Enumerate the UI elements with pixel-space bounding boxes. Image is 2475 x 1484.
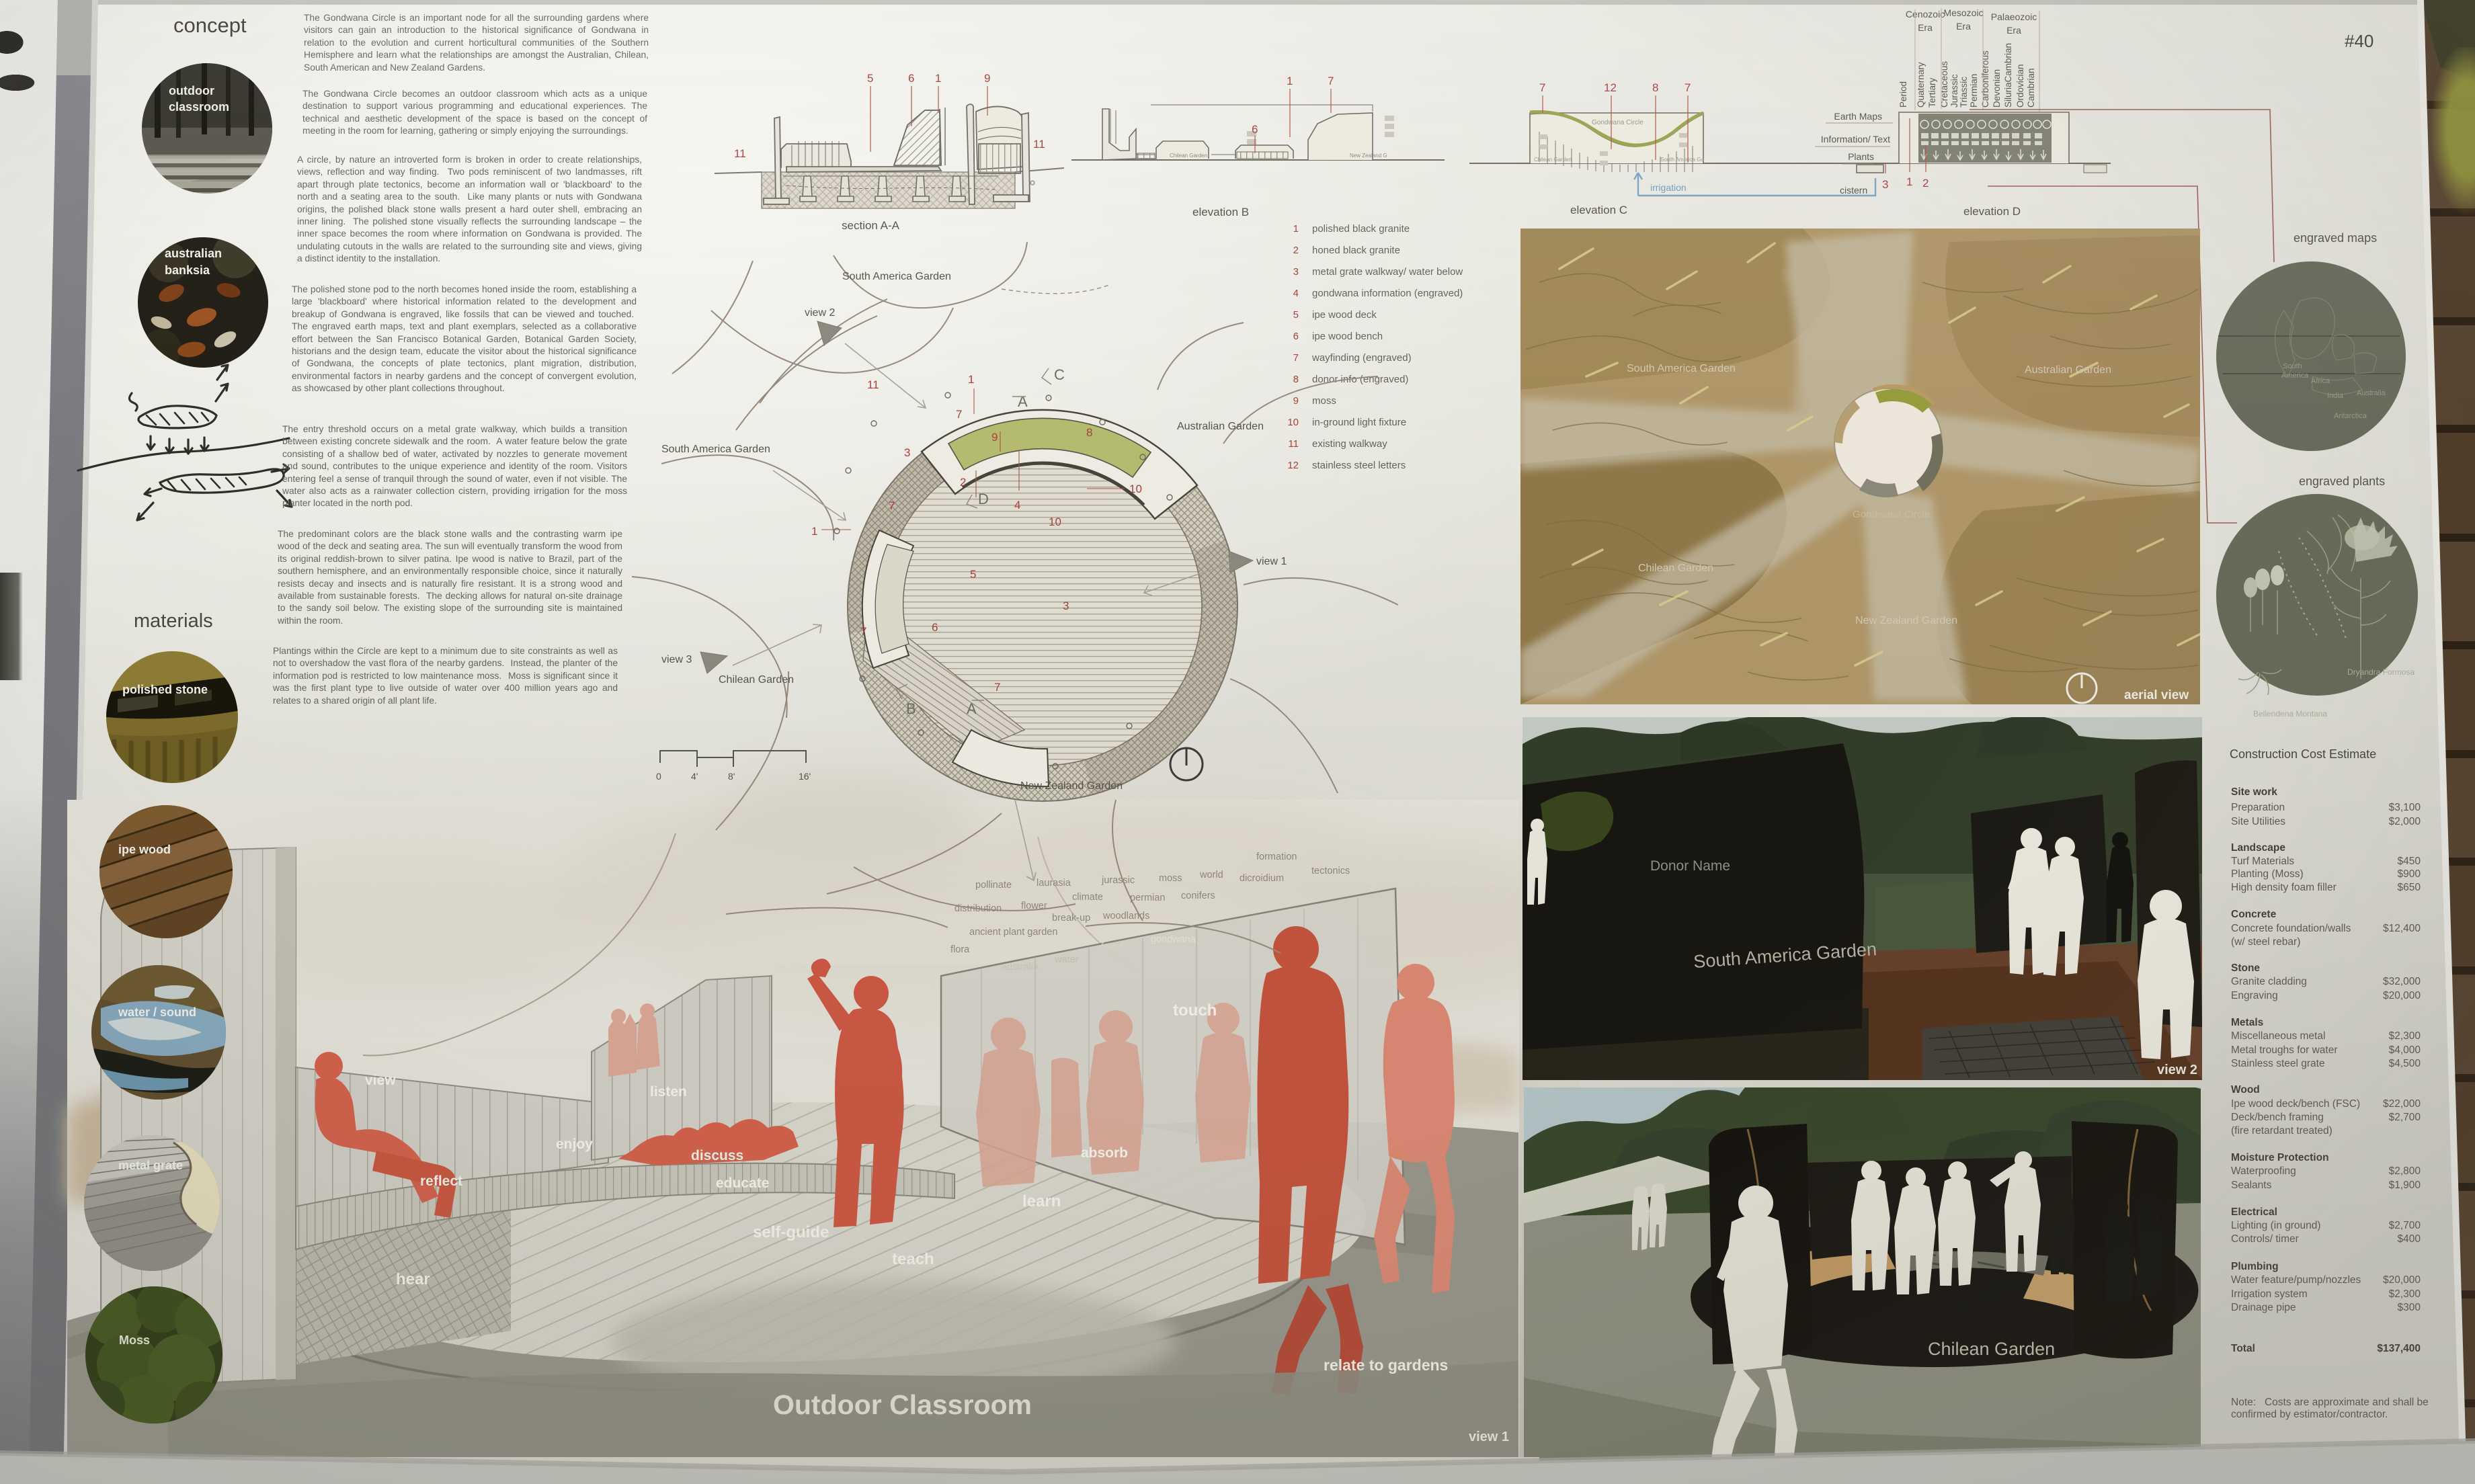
svg-text:America: America [2281, 372, 2309, 380]
svg-text:Bellendena Montana: Bellendena Montana [2253, 709, 2327, 718]
svg-text:India: India [2327, 392, 2344, 400]
svg-text:engraved maps: engraved maps [2294, 231, 2377, 245]
svg-text:South: South [2283, 362, 2302, 370]
svg-text:Australia: Australia [2357, 389, 2386, 397]
svg-text:engraved plants: engraved plants [2299, 475, 2385, 488]
svg-text:Africa: Africa [2311, 377, 2330, 385]
svg-text:Dryandra Formosa: Dryandra Formosa [2347, 667, 2415, 677]
svg-text:Antarctica: Antarctica [2334, 412, 2367, 420]
